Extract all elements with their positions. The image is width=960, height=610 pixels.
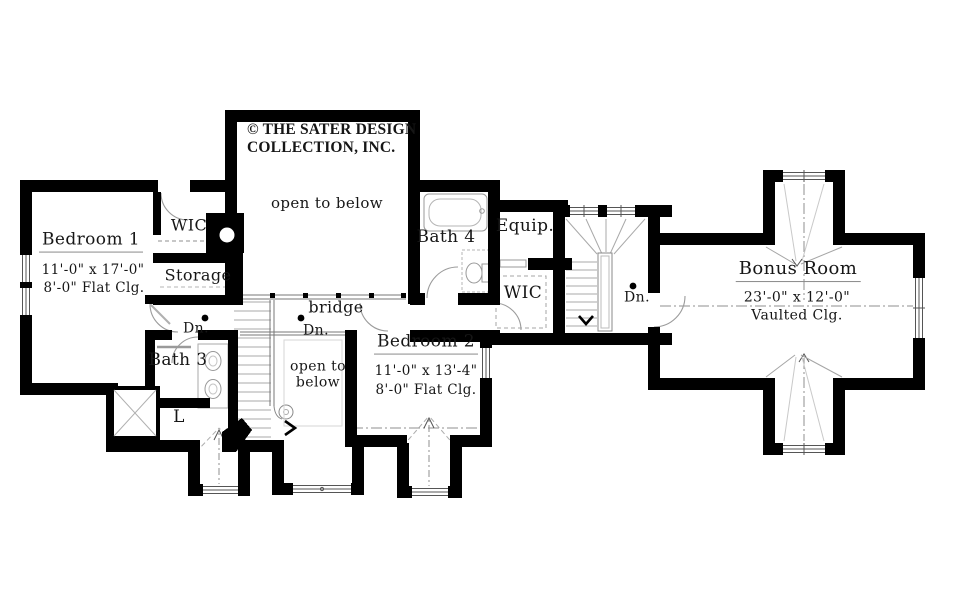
chimney-flue [220,228,235,243]
window-bedroom2-dormer [412,486,448,498]
bedroom1-name: Bedroom 1 [39,232,143,253]
storage-label: Storage [165,268,232,285]
bath4-label: Bath 4 [416,229,475,247]
linen-closet [112,388,158,438]
open-to-below-2-line2: below [296,376,340,391]
stair-down-chevron-hall [579,316,593,324]
window-bonus-right [913,278,925,338]
down-stairhall-label: Dn. [624,291,650,306]
window-bedroom2-right [480,348,492,378]
bonus-room-name: Bonus Room [736,260,861,282]
open-to-below-2-line1: open to [290,360,346,375]
bedroom2-dims: 11'-0" x 13'-4" [375,364,478,378]
open-to-below-main-label: open to below [271,196,383,212]
window-bedroom1-left [20,255,32,315]
bonus-room-ceiling: Vaulted Clg. [751,309,842,324]
window-stairhall-1 [570,205,598,217]
down-bridge-label: Dn. [303,324,329,339]
stair-down-chevron-main [285,421,295,435]
bedroom2-ceiling: 8'-0" Flat Clg. [376,383,477,397]
window-center-bay [293,483,351,495]
down-left-label: Dn. [183,322,209,337]
equip-label: Equip. [496,218,554,236]
copyright-line1: © THE SATER DESIGN [247,121,416,139]
copyright-notice: © THE SATER DESIGN COLLECTION, INC. [247,121,416,156]
bedroom1-ceiling: 8'-0" Flat Clg. [44,281,145,295]
window-stairhall-2 [607,205,635,217]
window-bonus-dormer-top [783,170,825,182]
copyright-line2: COLLECTION, INC. [247,139,416,157]
bedroom1-dims: 11'-0" x 17'-0" [42,263,145,277]
laundry-label: L [173,409,185,427]
floor-plan: © THE SATER DESIGN COLLECTION, INC. open… [0,0,960,610]
window-left-dormer [203,484,238,496]
bridge-label: bridge [308,300,363,317]
wic-hall-label: WIC [504,285,542,303]
bedroom2-name: Bedroom 2 [374,334,478,355]
bonus-room-dims: 23'-0" x 12'-0" [744,291,850,306]
bath3-label: Bath 3 [148,352,207,370]
direction-markers [202,283,637,435]
window-bonus-dormer-bottom [783,443,825,455]
wic-bedroom1-label: WIC [171,218,207,235]
